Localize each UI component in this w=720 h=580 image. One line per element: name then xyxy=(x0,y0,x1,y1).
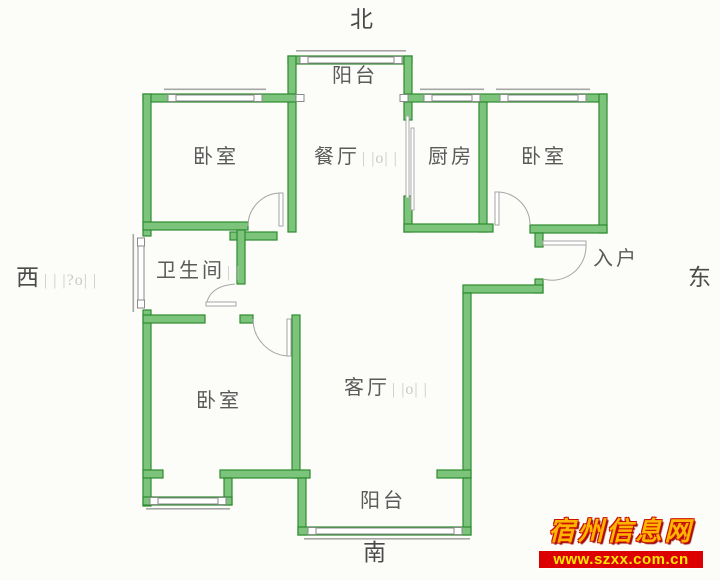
window-cap xyxy=(138,238,145,246)
window-frame-line xyxy=(133,234,135,312)
door-arc xyxy=(248,193,281,226)
watermark: 宿州信息网 www.szxx.com.cn xyxy=(539,511,703,569)
door-arc xyxy=(253,319,289,356)
door-leaf xyxy=(543,241,586,245)
door-leaf xyxy=(287,319,291,356)
window-cap xyxy=(254,95,262,102)
window xyxy=(150,498,226,504)
compass-east: 东 xyxy=(688,266,711,289)
label-bedroom-nw: 卧室 xyxy=(193,147,239,167)
watermark-url: www.szxx.com.cn xyxy=(539,551,703,569)
door-leaf xyxy=(206,302,236,306)
wall xyxy=(240,315,253,323)
wall xyxy=(535,233,543,247)
window-frame-line xyxy=(496,89,590,91)
window xyxy=(138,238,144,308)
compass-west-label: 西 xyxy=(16,265,42,290)
window-cap xyxy=(296,95,304,102)
door-arc xyxy=(207,284,235,302)
window-frame-line xyxy=(304,538,470,540)
wall xyxy=(479,102,487,232)
sliding-door-panel xyxy=(411,128,414,210)
label-dining: 餐厅| |o| | xyxy=(314,147,398,167)
bathroom-text: 卫生间 xyxy=(156,260,225,282)
label-kitchen: 厨房 xyxy=(428,147,474,167)
window xyxy=(500,95,586,101)
windows xyxy=(133,50,591,540)
wall xyxy=(288,56,296,232)
window-cap xyxy=(394,57,402,64)
floorplan-page: { "compass": { "north": "北", "south": "南… xyxy=(0,0,720,580)
jpeg-artifact-mark: | | |?o| | xyxy=(44,272,97,289)
window-frame-line xyxy=(296,50,406,52)
window-frame-line xyxy=(420,89,484,91)
door-arc xyxy=(543,245,586,280)
window-cap xyxy=(138,300,145,308)
wall xyxy=(437,470,471,478)
compass-south: 南 xyxy=(363,541,386,564)
label-balcony-bottom: 阳台 xyxy=(360,491,406,511)
window-cap xyxy=(578,95,586,102)
door-leaf xyxy=(279,193,283,226)
wall xyxy=(292,315,300,478)
window-cap xyxy=(168,95,176,102)
jpeg-artifact-mark: | | xyxy=(227,264,240,281)
compass-north: 北 xyxy=(350,8,373,31)
label-entry: 入户 xyxy=(593,249,639,269)
window-frame-line xyxy=(164,89,266,91)
jpeg-artifact-mark: | |o| | xyxy=(392,381,428,398)
window-cap xyxy=(454,528,462,535)
label-bedroom-ne: 卧室 xyxy=(521,147,567,167)
wall xyxy=(404,224,493,232)
window-cap xyxy=(150,498,158,505)
wall xyxy=(463,285,543,293)
wall xyxy=(220,470,310,478)
dining-text: 餐厅 xyxy=(314,146,360,168)
door-arc xyxy=(497,192,530,225)
wall xyxy=(404,56,412,120)
window-frame-line xyxy=(146,508,230,510)
wall xyxy=(599,94,607,233)
window-cap xyxy=(300,57,308,64)
wall xyxy=(143,222,248,230)
door-leaf xyxy=(495,192,499,225)
walls xyxy=(143,56,607,535)
compass-west: 西| | |?o| | xyxy=(16,266,97,289)
label-bathroom: 卫生间| | xyxy=(156,261,240,281)
window-cap xyxy=(424,95,432,102)
window xyxy=(308,528,462,534)
sliding-door-panel xyxy=(406,116,409,198)
label-balcony-top: 阳台 xyxy=(332,66,378,86)
wall xyxy=(530,225,607,233)
window-cap xyxy=(500,95,508,102)
wall xyxy=(143,94,151,236)
window-cap xyxy=(472,95,480,102)
jpeg-artifact-mark: | |o| | xyxy=(362,150,398,167)
window xyxy=(168,95,262,101)
wall xyxy=(143,315,205,323)
wall xyxy=(463,293,471,478)
window-cap xyxy=(400,95,408,102)
label-bedroom-sw: 卧室 xyxy=(196,391,242,411)
label-living: 客厅| |o| | xyxy=(344,378,428,398)
window xyxy=(300,57,402,63)
wall xyxy=(143,470,163,478)
living-text: 客厅 xyxy=(344,377,390,399)
window-cap xyxy=(218,498,226,505)
watermark-site-name: 宿州信息网 xyxy=(539,511,703,548)
window-cap xyxy=(308,528,316,535)
